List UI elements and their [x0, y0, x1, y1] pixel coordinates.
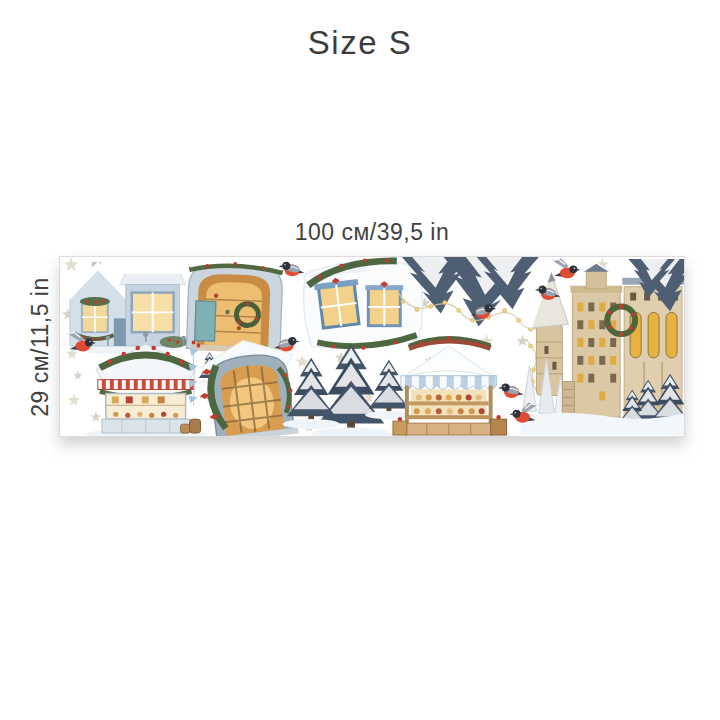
snowy-house-sticker	[67, 258, 188, 354]
castle-sticker	[521, 259, 684, 435]
size-title: Size S	[0, 24, 720, 62]
sticker-sheet-art	[60, 257, 684, 436]
double-window-sticker	[301, 257, 424, 353]
height-dimension-label: 29 см/11,5 in	[27, 277, 54, 417]
market-stall-sticker	[387, 336, 511, 436]
arched-window-sticker	[186, 260, 283, 353]
width-dimension-label: 100 см/39,5 in	[59, 220, 685, 245]
sticker-sheet	[59, 256, 685, 437]
